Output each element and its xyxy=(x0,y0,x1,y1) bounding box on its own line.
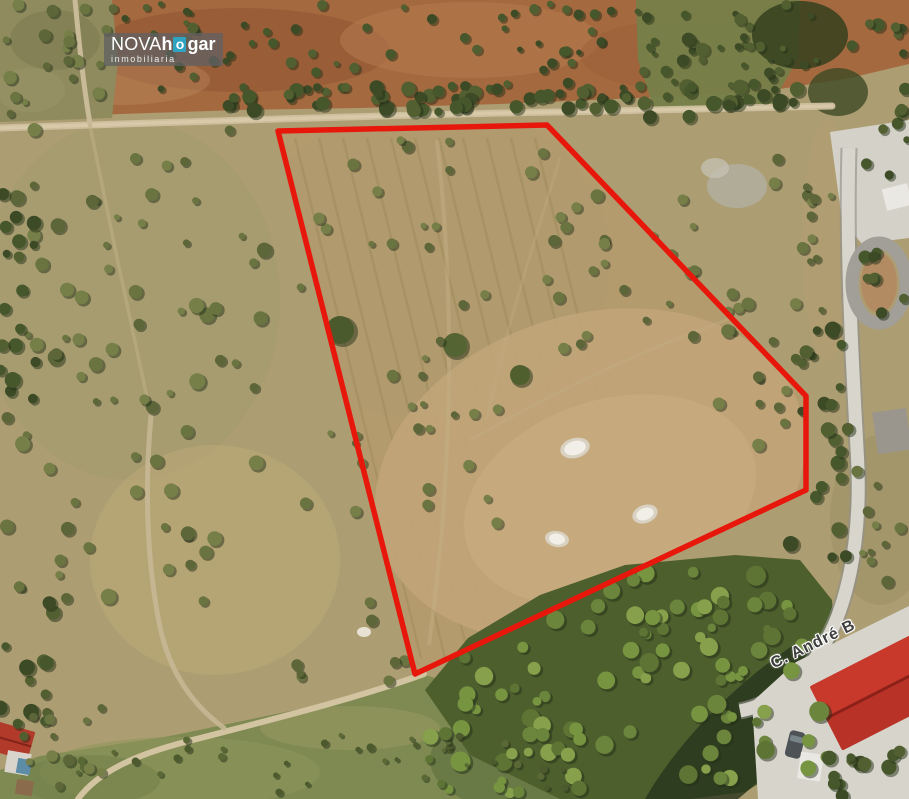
agency-logo-tagline: inmobiliaria xyxy=(111,54,216,64)
logo-text-gar: gar xyxy=(187,36,215,53)
logo-text-h: h xyxy=(161,36,172,53)
agency-logo: NOVAhogar inmobiliaria xyxy=(104,33,223,66)
satellite-scene xyxy=(0,0,909,799)
left-open-field xyxy=(90,445,340,675)
listing-aerial-image: NOVAhogar inmobiliaria C. André B xyxy=(0,0,909,799)
agency-logo-name: NOVAhogar xyxy=(111,36,216,53)
gray-roof-building xyxy=(872,408,909,454)
logo-text-nova: NOVA xyxy=(111,36,161,53)
logo-accent-letter: o xyxy=(173,37,186,52)
brown-shed xyxy=(15,779,34,796)
